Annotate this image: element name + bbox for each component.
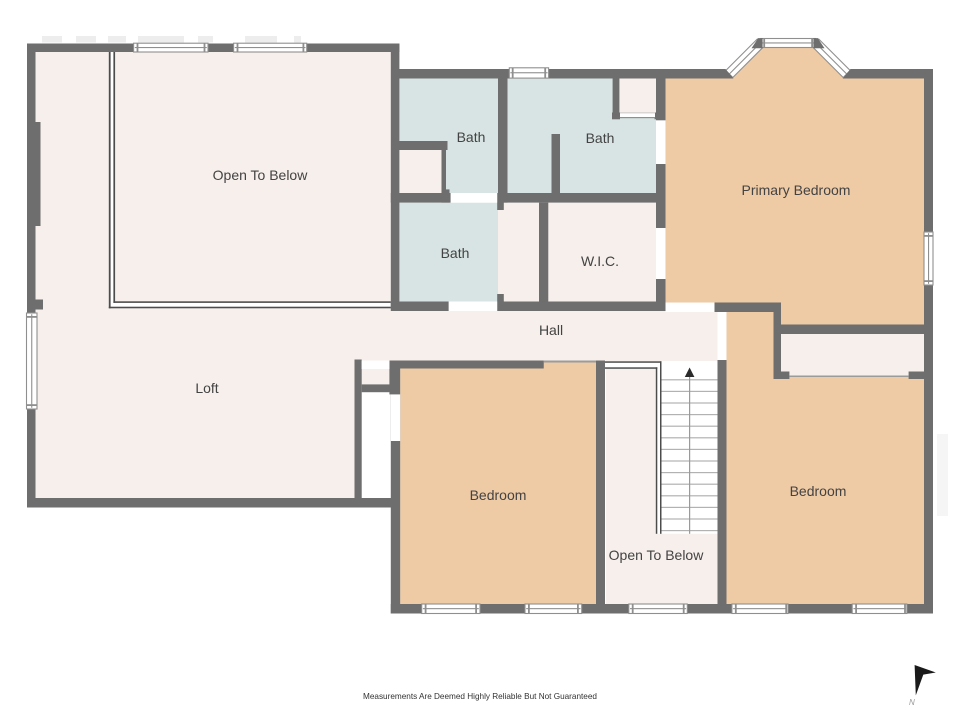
svg-text:Bedroom: Bedroom	[790, 483, 847, 499]
svg-text:Bedroom: Bedroom	[470, 487, 527, 503]
svg-text:Hall: Hall	[539, 322, 563, 338]
svg-text:Open To Below: Open To Below	[609, 547, 705, 563]
svg-text:W.I.C.: W.I.C.	[581, 253, 619, 269]
svg-text:Bath: Bath	[457, 129, 486, 145]
svg-text:Bath: Bath	[441, 245, 470, 261]
svg-text:Bath: Bath	[586, 130, 615, 146]
svg-text:N: N	[909, 698, 915, 707]
svg-text:Open To Below: Open To Below	[213, 167, 309, 183]
svg-text:Primary Bedroom: Primary Bedroom	[742, 182, 851, 198]
svg-text:Loft: Loft	[195, 380, 218, 396]
svg-text:Measurements Are Deemed Highly: Measurements Are Deemed Highly Reliable …	[363, 692, 597, 701]
